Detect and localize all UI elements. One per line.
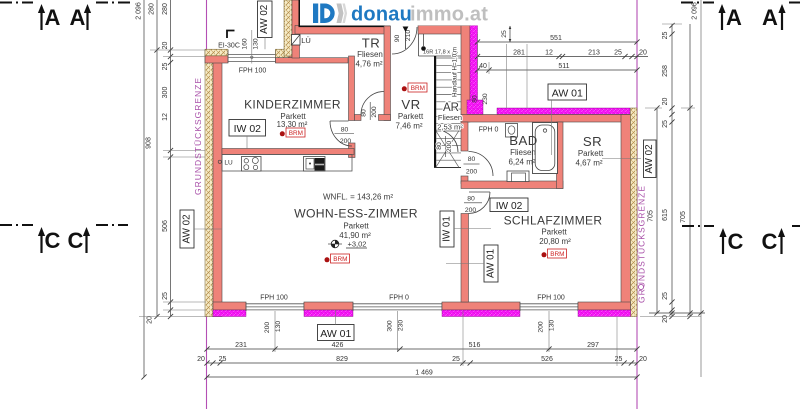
svg-text:AW 01: AW 01 <box>486 249 497 278</box>
svg-text:200: 200 <box>340 138 352 145</box>
svg-text:Fliesen: Fliesen <box>438 113 462 122</box>
svg-text:12: 12 <box>162 113 169 121</box>
svg-text:WOHN-ESS-ZIMMER: WOHN-ESS-ZIMMER <box>294 207 418 221</box>
svg-text:281: 281 <box>513 50 525 57</box>
svg-text:VR: VR <box>401 97 420 112</box>
svg-text:SCHLAFZIMMER: SCHLAFZIMMER <box>504 214 603 228</box>
svg-text:TR: TR <box>362 36 381 51</box>
svg-text:908: 908 <box>146 137 153 149</box>
svg-text:Parkett: Parkett <box>398 112 424 121</box>
svg-text:BRM: BRM <box>550 251 564 258</box>
svg-text:80: 80 <box>468 156 476 163</box>
svg-text:+3,02: +3,02 <box>348 240 367 249</box>
svg-text:20: 20 <box>662 315 669 323</box>
svg-text:LÜ: LÜ <box>301 36 311 45</box>
svg-text:Handlauf H=1,0 m: Handlauf H=1,0 m <box>452 47 459 97</box>
svg-text:EI-30C: EI-30C <box>218 43 240 50</box>
svg-text:506: 506 <box>162 220 169 232</box>
svg-text:615: 615 <box>662 209 669 221</box>
svg-text:300: 300 <box>387 320 394 332</box>
svg-text:C: C <box>68 228 84 253</box>
svg-text:GRUNDSTÜCKSGRENZE: GRUNDSTÜCKSGRENZE <box>193 77 203 195</box>
svg-text:90: 90 <box>394 35 401 43</box>
svg-text:BRM: BRM <box>289 130 303 137</box>
svg-text:donau: donau <box>351 4 412 26</box>
svg-text:25: 25 <box>162 63 169 71</box>
svg-text:12: 12 <box>545 50 553 57</box>
svg-text:IW 01: IW 01 <box>442 216 453 242</box>
svg-text:511: 511 <box>558 63 569 70</box>
svg-text:25: 25 <box>615 356 623 363</box>
svg-text:2 096: 2 096 <box>692 2 699 20</box>
svg-text:AW 02: AW 02 <box>259 5 270 34</box>
svg-text:20,80 m²: 20,80 m² <box>539 237 571 246</box>
svg-text:200: 200 <box>371 106 378 118</box>
svg-text:80: 80 <box>467 196 475 203</box>
svg-text:160: 160 <box>242 38 249 50</box>
svg-text:A: A <box>762 5 778 30</box>
svg-text:1 469: 1 469 <box>415 370 433 377</box>
svg-text:AW 01: AW 01 <box>552 87 583 99</box>
svg-text:213: 213 <box>588 50 600 57</box>
svg-text:Parkett: Parkett <box>541 228 567 237</box>
svg-text:Parkett: Parkett <box>578 149 604 158</box>
svg-text:KINDERZIMMER: KINDERZIMMER <box>244 98 341 112</box>
svg-text:25: 25 <box>614 50 622 57</box>
svg-text:AW 02: AW 02 <box>182 214 193 243</box>
svg-text:25: 25 <box>452 356 460 363</box>
svg-text:20: 20 <box>162 42 169 50</box>
svg-text:C: C <box>45 228 61 253</box>
svg-text:A: A <box>70 5 86 30</box>
svg-text:BAD: BAD <box>509 133 538 148</box>
svg-text:25: 25 <box>662 292 669 300</box>
svg-text:FPH 100: FPH 100 <box>537 295 565 302</box>
svg-text:200: 200 <box>466 169 478 176</box>
svg-text:230: 230 <box>398 320 405 332</box>
svg-text:426: 426 <box>332 342 344 349</box>
svg-text:25: 25 <box>162 292 169 300</box>
svg-text:40: 40 <box>479 63 487 70</box>
svg-text:80: 80 <box>341 127 349 134</box>
svg-text:200: 200 <box>538 321 545 333</box>
svg-text:IW 02: IW 02 <box>234 123 262 135</box>
svg-text:20: 20 <box>147 316 154 324</box>
svg-text:7,46 m²: 7,46 m² <box>395 122 422 131</box>
svg-text:AW 01: AW 01 <box>320 328 351 340</box>
svg-text:20: 20 <box>197 356 205 363</box>
svg-text:Fliesen: Fliesen <box>510 148 536 157</box>
svg-text:SR: SR <box>583 134 602 149</box>
svg-text:200: 200 <box>446 141 453 153</box>
svg-text:6,24 m²: 6,24 m² <box>508 158 535 167</box>
svg-text:200: 200 <box>264 322 271 334</box>
svg-text:300: 300 <box>162 87 169 99</box>
svg-text:A: A <box>726 5 742 30</box>
svg-text:130: 130 <box>253 38 260 50</box>
svg-text:C: C <box>762 229 778 254</box>
svg-text:80: 80 <box>361 109 368 117</box>
svg-text:FPH 0: FPH 0 <box>479 127 499 134</box>
svg-text:4,67 m²: 4,67 m² <box>575 159 602 168</box>
svg-text:297: 297 <box>587 342 599 349</box>
svg-text:80: 80 <box>472 95 479 103</box>
svg-text:516: 516 <box>469 342 481 349</box>
svg-text:BRM: BRM <box>333 256 347 263</box>
svg-text:IW 02: IW 02 <box>496 201 523 212</box>
svg-text:20: 20 <box>639 356 647 363</box>
svg-text:Fliesen: Fliesen <box>357 50 383 59</box>
svg-text:WNFL. = 143,26 m²: WNFL. = 143,26 m² <box>323 193 393 202</box>
svg-text:immo.at: immo.at <box>410 4 488 26</box>
svg-text:25: 25 <box>662 32 669 40</box>
svg-text:280: 280 <box>149 3 156 15</box>
svg-text:2 096: 2 096 <box>136 2 143 20</box>
svg-text:Parkett: Parkett <box>343 222 369 231</box>
svg-text:FPH 100: FPH 100 <box>260 295 288 302</box>
svg-text:829: 829 <box>336 356 348 363</box>
svg-text:130: 130 <box>275 321 282 333</box>
svg-text:705: 705 <box>648 210 655 222</box>
svg-text:200: 200 <box>465 207 477 214</box>
svg-text:551: 551 <box>550 35 562 42</box>
svg-text:130: 130 <box>549 320 556 332</box>
svg-text:230: 230 <box>482 93 489 105</box>
svg-text:4,76 m²: 4,76 m² <box>355 60 382 69</box>
svg-text:FPH 100: FPH 100 <box>239 68 267 75</box>
svg-text:210: 210 <box>405 30 412 42</box>
svg-text:2,53 m²: 2,53 m² <box>437 123 463 132</box>
svg-text:BRM: BRM <box>411 85 425 92</box>
svg-text:526: 526 <box>541 356 553 363</box>
svg-text:258: 258 <box>662 65 669 77</box>
svg-text:C: C <box>728 229 744 254</box>
svg-text:AW 02: AW 02 <box>644 144 655 173</box>
svg-text:705: 705 <box>680 211 687 223</box>
svg-text:280: 280 <box>162 3 169 15</box>
svg-text:FPH 0: FPH 0 <box>389 295 409 302</box>
svg-text:25: 25 <box>501 30 508 38</box>
svg-text:231: 231 <box>235 342 247 349</box>
svg-text:A: A <box>45 5 61 30</box>
svg-text:25: 25 <box>662 120 669 128</box>
svg-text:LU: LU <box>224 160 233 167</box>
svg-text:20: 20 <box>639 50 647 57</box>
svg-text:20: 20 <box>662 98 669 106</box>
svg-text:80: 80 <box>436 142 443 150</box>
svg-text:25: 25 <box>219 356 227 363</box>
